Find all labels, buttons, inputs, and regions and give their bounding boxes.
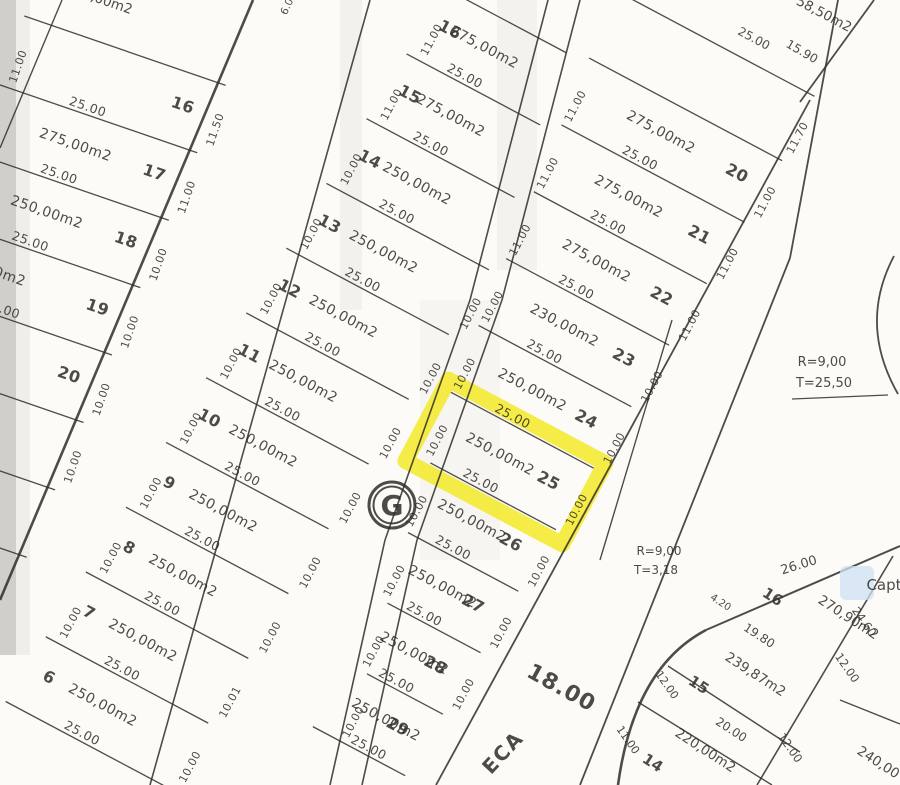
band-east-frontage-left: 10.00 bbox=[381, 563, 408, 599]
band-west-frontage-right: 11.00 bbox=[175, 179, 198, 215]
block-d-lot15-len: 20.00 bbox=[713, 714, 749, 744]
cadastral-plan-scan: 1625.0011.0011.5017275,00m225.0011.00182… bbox=[0, 0, 900, 785]
block-d-lot16-len: 19.80 bbox=[741, 620, 777, 650]
block-d-lot16-seg: 4.20 bbox=[708, 592, 733, 613]
band-central-frontage-left: 10.00 bbox=[258, 281, 285, 317]
band-central-frontage-right: 10.00 bbox=[257, 619, 284, 655]
band-west-frontage-right: 11.50 bbox=[204, 111, 227, 147]
band-east-frontage-right: 11.00 bbox=[751, 184, 778, 220]
band-east-lot-number: 25 bbox=[534, 467, 563, 495]
band-central-lot-length: 25.00 bbox=[222, 458, 263, 489]
corner-lot-length: 25.00 bbox=[735, 24, 772, 52]
band-central-frontage-right: 10.00 bbox=[176, 749, 203, 785]
band-central-frontage-left: 10.00 bbox=[218, 345, 245, 381]
band-central-frontage-left: 11.00 bbox=[378, 86, 405, 122]
band-central-lot-length: 25.00 bbox=[377, 196, 418, 227]
band-east-lot-length: 25.00 bbox=[588, 207, 629, 238]
block-d-col2-division bbox=[840, 700, 900, 724]
band-east-lot-number: 24 bbox=[572, 405, 601, 433]
band-central-lot-length: 25.00 bbox=[445, 60, 486, 91]
band-west-division-line bbox=[24, 16, 225, 85]
band-east-lot-length: 25.00 bbox=[620, 142, 661, 173]
culdesac-arc bbox=[877, 256, 898, 394]
band-east-frontage-right: 11.00 bbox=[714, 246, 741, 282]
band-east-frontage-right: 10.00 bbox=[601, 430, 628, 466]
band-central-frontage-left: 10.00 bbox=[137, 475, 164, 511]
band-east-frontage-right: 11.00 bbox=[676, 307, 703, 343]
band-east-frontage-left: 11.00 bbox=[562, 88, 589, 124]
band-central-lot-length: 25.00 bbox=[302, 329, 343, 360]
band-west-frontage-right: 10.00 bbox=[118, 314, 141, 350]
block-d-lot13-area: 240,00 bbox=[854, 743, 900, 782]
band-central-lot-length: 25.00 bbox=[142, 588, 183, 619]
band-west-frontage-right: 10.00 bbox=[147, 246, 170, 282]
block-d-dim-1200c: 12.00 bbox=[653, 668, 682, 701]
band-central-frontage-left: 10.00 bbox=[97, 540, 124, 576]
band-east-lot-number: 23 bbox=[609, 344, 638, 372]
curve-leader-line bbox=[792, 395, 888, 399]
band-central-lot-length: 25.00 bbox=[262, 393, 303, 424]
street-width-fragment: 6.0 bbox=[278, 0, 296, 17]
band-central-frontage-right: 10.00 bbox=[297, 555, 324, 591]
band-east-lot-length: 25.00 bbox=[556, 271, 597, 302]
band-east-lot-number: 22 bbox=[647, 282, 676, 310]
band-west-lot-number: 17 bbox=[140, 160, 168, 186]
band-west-lot-length: 25.00 bbox=[67, 93, 108, 120]
band-central-frontage-left: 10.00 bbox=[57, 604, 84, 640]
band-east-frontage-right: 10.00 bbox=[488, 615, 515, 651]
band-east-lot-length: 25.00 bbox=[349, 732, 390, 763]
band-east-lot-length: 25.00 bbox=[524, 336, 565, 367]
band-west-lot-number: 18 bbox=[112, 227, 140, 253]
band-central-frontage-left: 11.00 bbox=[418, 22, 445, 58]
block-d-lot14-num: 14 bbox=[639, 750, 666, 776]
band-central-lot-length: 25.00 bbox=[102, 652, 143, 683]
band-central-lot-length: 25.00 bbox=[411, 128, 452, 159]
street-width-18: 18.00 bbox=[522, 659, 599, 717]
band-west-lot-number: 20 bbox=[55, 362, 83, 388]
curve-tangent-s: T=3,18 bbox=[633, 563, 678, 577]
band-central-frontage-left: 10.00 bbox=[177, 410, 204, 446]
band-central-frontage-right: 10.01 bbox=[216, 684, 243, 720]
band-west-lot-number: 16 bbox=[169, 92, 197, 118]
curve-radius-s: R=9,00 bbox=[636, 544, 681, 558]
cadastral-map-canvas: 1625.0011.0011.5017275,00m225.0011.00182… bbox=[0, 0, 900, 785]
band-central-frontage-left: 10.00 bbox=[298, 216, 325, 252]
band-east-frontage-right: 10.00 bbox=[525, 553, 552, 589]
band-west-lot-area: 275,00m2 bbox=[37, 125, 114, 165]
band-east-frontage-right: 11.70 bbox=[784, 120, 811, 156]
corner-lot-area: 58,50m2 bbox=[793, 0, 854, 36]
band-east-frontage-right: 10.00 bbox=[638, 369, 665, 405]
block-d-dim-1200a: 12.00 bbox=[832, 650, 862, 685]
block-d-lot14-front: 11.00 bbox=[614, 723, 643, 756]
block-d-lot15-area: 239,87m2 bbox=[722, 649, 789, 700]
band-west-frontage-right: 10.00 bbox=[90, 381, 113, 417]
band-east-frontage-right: 10.00 bbox=[450, 676, 477, 712]
capture-watermark: Capt bbox=[866, 576, 900, 594]
band-central-division-line bbox=[367, 119, 515, 198]
clipped-area-top-west: 275,00m2 bbox=[64, 0, 134, 18]
block-d-street-len: 26.00 bbox=[779, 553, 819, 578]
corner-lot-front: 15.90 bbox=[784, 37, 821, 66]
band-west-lot-number: 19 bbox=[84, 294, 112, 320]
block-d-lot15-num: 15 bbox=[685, 672, 712, 698]
band-east-lot-length: 25.00 bbox=[404, 598, 445, 629]
band-west-frontage-right: 10.00 bbox=[61, 449, 84, 485]
band-central-lot-length: 25.00 bbox=[62, 717, 103, 748]
band-east-lot-number: 20 bbox=[722, 159, 751, 187]
curve-tangent-ne: T=25,50 bbox=[795, 376, 852, 391]
band-central-lot-length: 25.00 bbox=[182, 523, 223, 554]
block-letter-marker: G bbox=[381, 489, 404, 522]
street-name-eca: ECA bbox=[477, 726, 529, 779]
band-west-lot-length: 25.00 bbox=[39, 161, 80, 188]
band-central-frontage-right: 10.00 bbox=[337, 490, 364, 526]
band-east-lot-number: 21 bbox=[685, 221, 714, 249]
band-central-lot-number: 6 bbox=[40, 666, 59, 688]
scan-edge-dark bbox=[0, 0, 16, 655]
curve-radius-ne: R=9,00 bbox=[798, 355, 847, 370]
